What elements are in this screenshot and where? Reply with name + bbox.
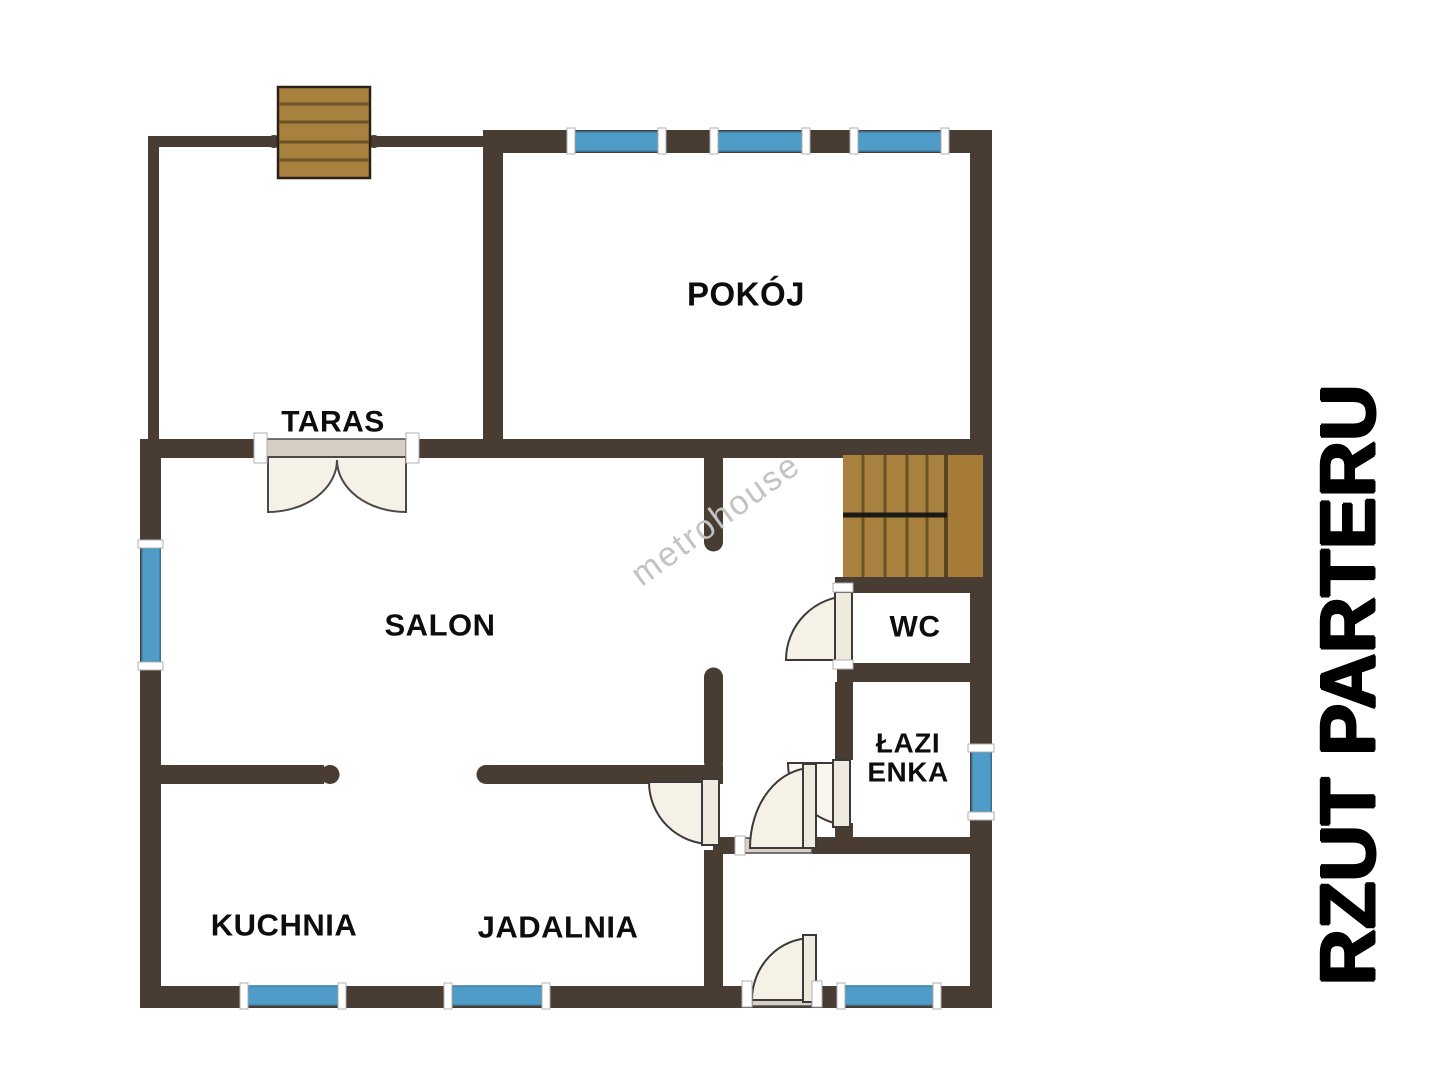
page-title: RZUT PARTERU — [1303, 385, 1394, 986]
wc-door — [786, 583, 853, 669]
door-leaf — [833, 760, 850, 827]
salon-top-wall-left — [140, 439, 256, 458]
jadalnia-door — [649, 779, 719, 845]
kuchnia-salon-divider — [140, 765, 324, 784]
door-leaf — [835, 592, 852, 662]
terrace-left-wall — [148, 136, 159, 440]
hall-window — [845, 986, 933, 1005]
hall-door — [735, 764, 816, 855]
lazienka-left-wall-upper — [835, 682, 853, 760]
door-leaf — [702, 779, 719, 845]
terrace-walls — [148, 135, 485, 440]
jadalnia-window — [452, 986, 542, 1005]
french-door-leaves — [268, 457, 406, 512]
jadalnia-hall-divider — [704, 850, 723, 986]
room-label-wc: WC — [890, 611, 941, 643]
lazienka-line-2: ENKA — [867, 758, 948, 787]
floor-plan-page: TARAS POKÓJ SALON WC ŁAZI ENKA KUCHNIA J… — [0, 0, 1440, 1080]
pokoj-window-3 — [858, 132, 941, 151]
pokoj-window-2 — [718, 132, 802, 151]
room-label-kuchnia: KUCHNIA — [211, 910, 357, 943]
west-wall — [140, 440, 161, 1008]
wc-lazienka-divider — [837, 663, 992, 682]
pokoj-window-1 — [575, 132, 658, 151]
door-leaf — [803, 764, 816, 848]
terrace-french-door — [254, 433, 419, 512]
lazienka-line-1: ŁAZI — [867, 729, 948, 758]
terrace-pokoj-divider — [483, 147, 503, 439]
room-label-pokoj: POKÓJ — [687, 278, 805, 313]
salon-window — [142, 548, 160, 662]
room-label-salon: SALON — [385, 610, 496, 643]
hall-wall-middle — [704, 677, 723, 762]
wall-end-cap — [321, 765, 340, 784]
exterior-steps-icon — [278, 87, 370, 178]
entrance-door — [742, 935, 822, 1007]
wc-top-wall — [835, 577, 992, 593]
room-label-lazienka: ŁAZI ENKA — [867, 729, 948, 788]
room-label-jadalnia: JADALNIA — [478, 912, 639, 945]
kuchnia-window — [248, 986, 338, 1005]
staircase-icon — [843, 455, 983, 577]
room-label-taras: TARAS — [281, 406, 385, 438]
lazienka-window — [972, 752, 991, 812]
door-threshold — [262, 439, 406, 457]
